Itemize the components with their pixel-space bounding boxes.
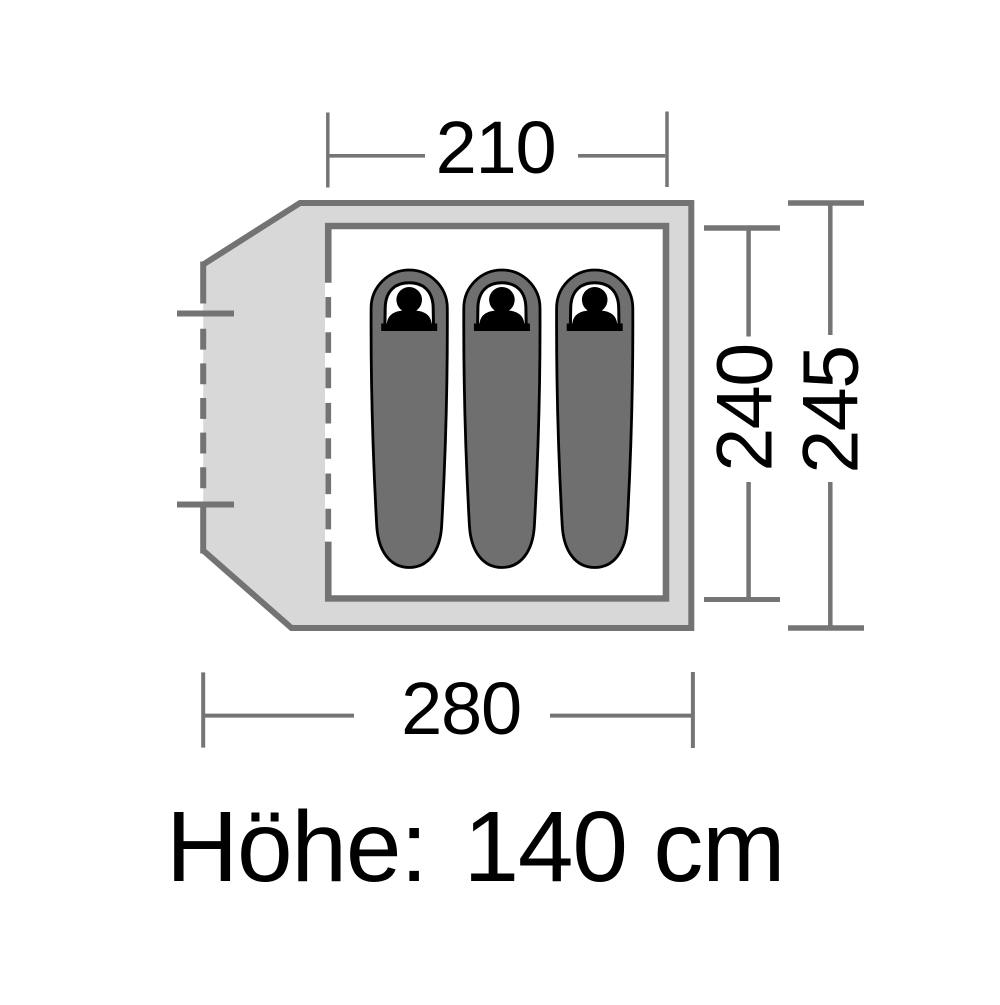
svg-text:210: 210 — [436, 106, 556, 189]
svg-text:245: 245 — [785, 346, 874, 473]
svg-text:Höhe:: Höhe: — [166, 791, 427, 903]
svg-text:280: 280 — [401, 667, 521, 750]
svg-text:140 cm: 140 cm — [464, 791, 785, 903]
svg-text:240: 240 — [700, 344, 789, 471]
